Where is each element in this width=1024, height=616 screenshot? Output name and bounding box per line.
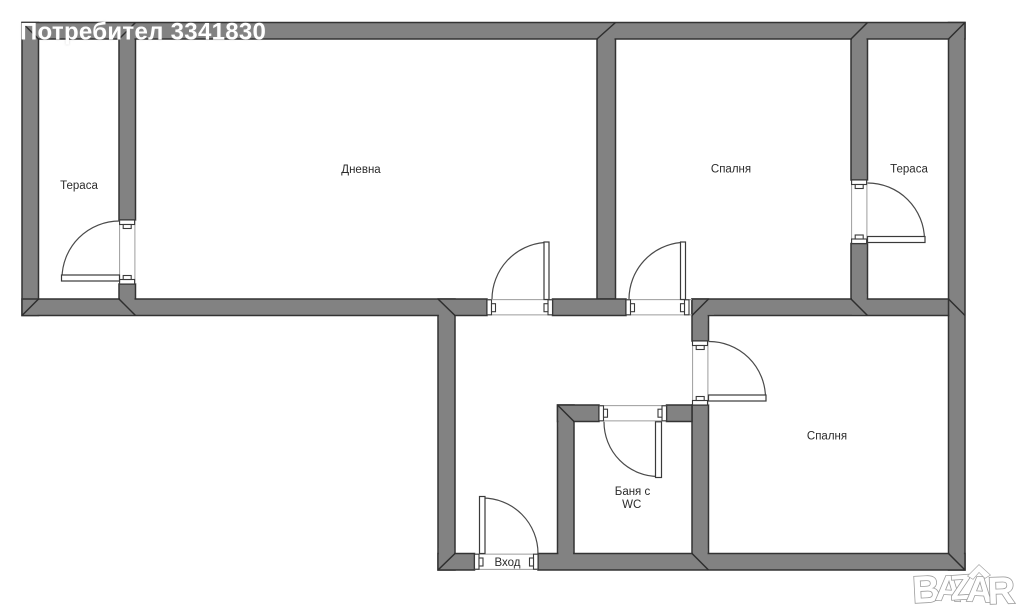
svg-text:Дневна: Дневна [341, 164, 381, 176]
svg-text:Спалня: Спалня [807, 431, 847, 443]
svg-text:Баня с: Баня с [615, 486, 651, 498]
svg-text:Вход: Вход [494, 557, 520, 569]
svg-text:Тераса: Тераса [60, 180, 98, 192]
svg-text:WC: WC [622, 499, 641, 511]
svg-text:Тераса: Тераса [890, 164, 928, 176]
svg-text:Потребител 3341830: Потребител 3341830 [20, 19, 266, 46]
svg-text:R: R [987, 570, 1016, 613]
svg-text:Спалня: Спалня [711, 164, 751, 176]
